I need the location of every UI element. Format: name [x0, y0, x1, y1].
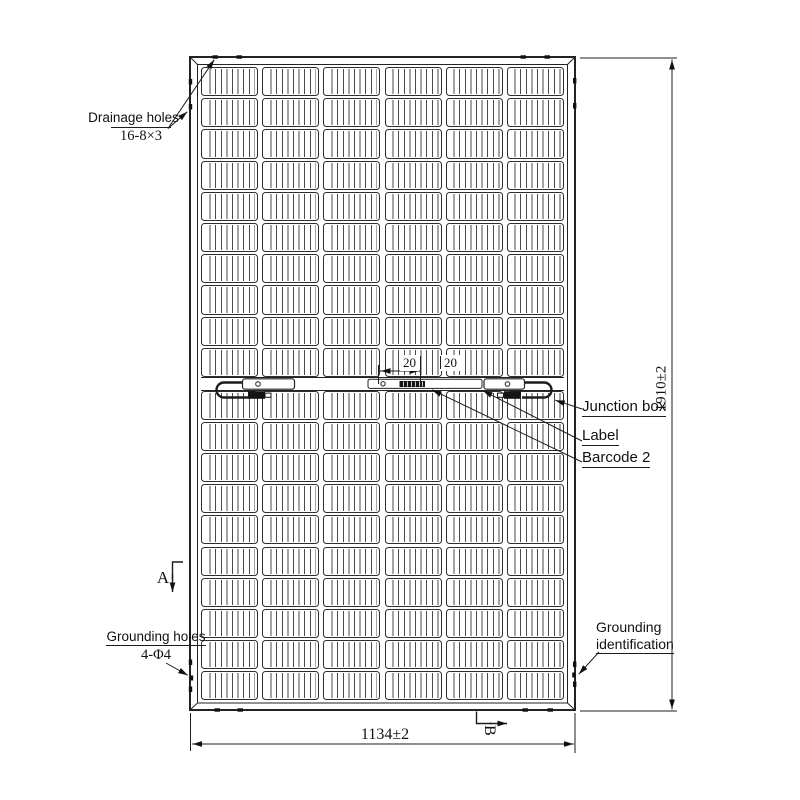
grounding-id-line1: Grounding [596, 619, 674, 636]
leader-junction-box [555, 400, 582, 409]
leader-grounding-id [579, 652, 599, 674]
label-plate [368, 379, 482, 388]
section-markers [173, 562, 508, 724]
drainage-holes-label: Drainage holes [87, 110, 180, 125]
width-dimension-text: 1134±2 [345, 726, 425, 744]
label-annotation: Label [582, 427, 619, 446]
grounding-id-line2: identification [596, 636, 674, 655]
drainage-holes-spec: 16-8×3 [111, 127, 171, 145]
barcode-annotation: Barcode 2 [582, 449, 650, 468]
technical-drawing-canvas: Drainage holes 16-8×3 Junction box Label… [0, 0, 800, 800]
grounding-holes-label: Grounding holes [106, 629, 206, 646]
leader-lines [166, 60, 599, 676]
junction-box-left [217, 379, 295, 399]
grounding-identification-label: Grounding identification [596, 619, 674, 654]
label-dim-right-text: 20 [441, 355, 460, 371]
junction-box-right [484, 379, 552, 399]
connector-left [248, 391, 265, 399]
leader-barcode [432, 390, 582, 462]
connector-right [504, 391, 521, 399]
height-dimension-text: 1910±2 [654, 359, 671, 419]
label-dim-left-text: 20 [400, 355, 419, 371]
grounding-holes-spec: 4-Φ4 [106, 647, 206, 664]
section-b-letter: B [481, 722, 498, 739]
leader-grounding-holes [166, 663, 188, 675]
section-a-letter: A [153, 568, 173, 588]
